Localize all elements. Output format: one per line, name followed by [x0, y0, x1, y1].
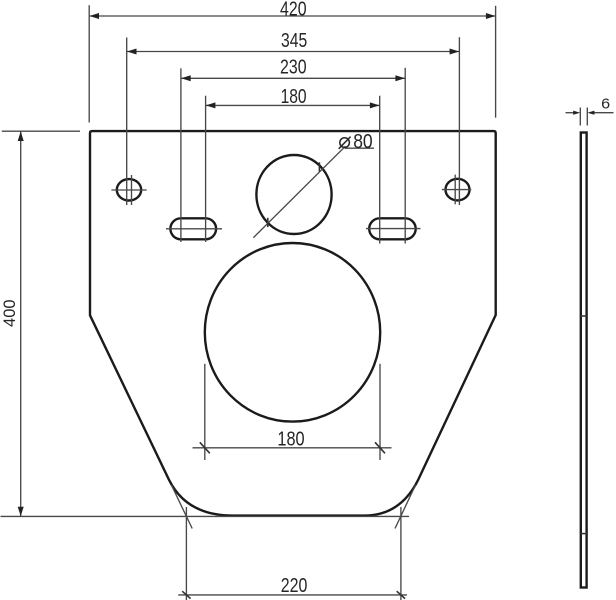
- svg-text:345: 345: [281, 30, 307, 52]
- svg-text:180: 180: [281, 86, 307, 108]
- svg-text:6: 6: [601, 96, 610, 113]
- svg-text:400: 400: [0, 299, 19, 327]
- svg-text:420: 420: [280, 0, 307, 21]
- svg-text:180: 180: [277, 428, 304, 450]
- svg-text:230: 230: [280, 57, 307, 79]
- svg-text:80: 80: [353, 131, 373, 153]
- svg-text:220: 220: [281, 575, 308, 597]
